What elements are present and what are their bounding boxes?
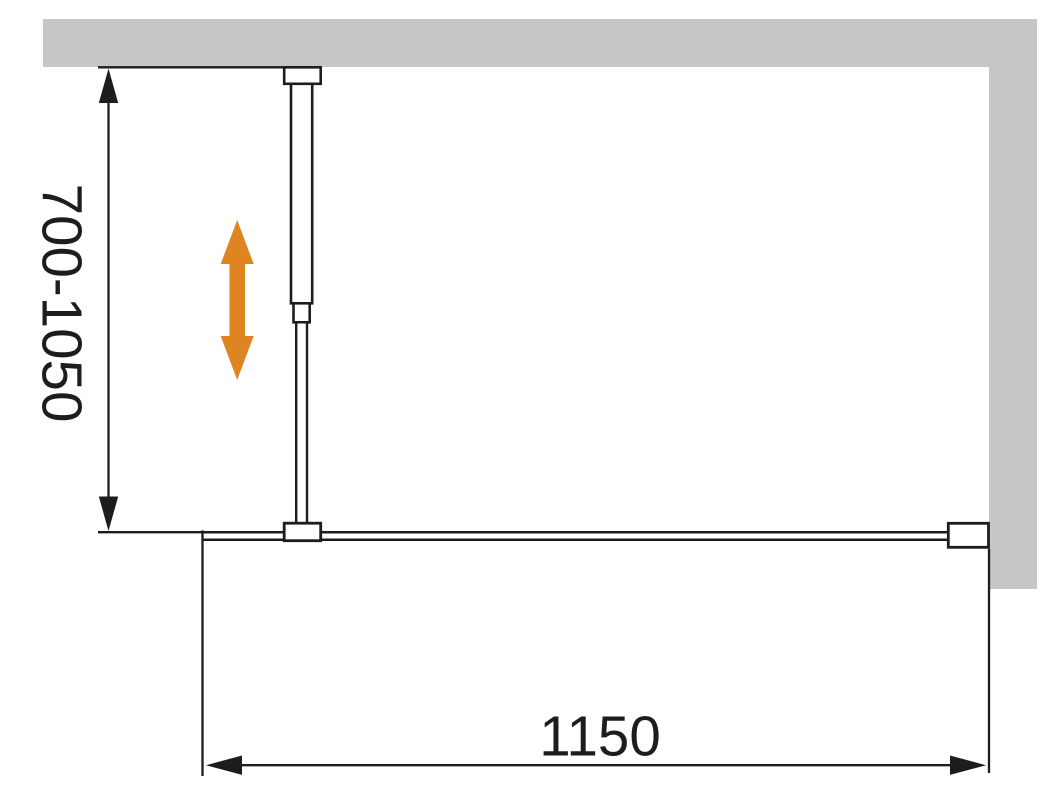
svg-text:700-1050: 700-1050 xyxy=(31,184,94,423)
svg-text:1150: 1150 xyxy=(539,705,661,768)
